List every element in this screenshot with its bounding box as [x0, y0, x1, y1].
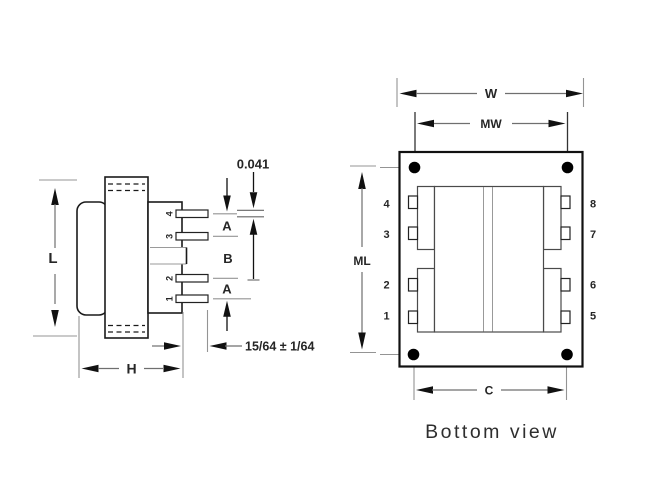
side-pin-number-3: 3: [165, 234, 175, 239]
bottom-pin-number-2: 2: [383, 280, 389, 292]
bottom-pin-4: [409, 196, 418, 209]
c-left-arrowhead: [416, 386, 433, 394]
dimension-label-h: H: [126, 361, 136, 377]
mw-left-arrowhead: [417, 120, 434, 128]
transformer-dimension-drawing: L 4 3 2 1 A B A: [0, 0, 650, 498]
h-left-arrowhead: [82, 365, 99, 373]
mounting-hole-top-left: [409, 162, 421, 174]
side-pin-number-2: 2: [165, 276, 175, 281]
bottom-pin-number-1: 1: [383, 311, 389, 323]
ml-up-arrowhead: [358, 172, 366, 189]
ml-down-arrowhead: [358, 333, 366, 350]
thickness-down-arrowhead: [250, 192, 258, 208]
terminal-block-bottom-right: [544, 269, 562, 333]
h-right-arrowhead: [164, 365, 181, 373]
pin-length-right-pointing-arrowhead: [164, 342, 181, 349]
coil-bobbin: [77, 202, 108, 315]
dimension-label-pin-length: 15/64 ± 1/64: [245, 340, 314, 354]
l-up-arrowhead: [51, 188, 59, 205]
terminal-block-top-right: [544, 187, 562, 250]
side-pin-2: [176, 275, 208, 283]
bottom-pin-number-5: 5: [590, 311, 596, 323]
pin-length-left-pointing-arrowhead: [210, 342, 227, 349]
bottom-pin-5: [561, 311, 570, 324]
dimension-label-l: L: [48, 250, 57, 267]
side-pin-number-1: 1: [165, 296, 175, 301]
dimension-label-a-top: A: [222, 219, 232, 234]
dimension-label-mw: MW: [480, 117, 502, 131]
bottom-pin-number-6: 6: [590, 280, 596, 292]
side-pin-number-4: 4: [165, 211, 175, 216]
bottom-pin-8: [561, 196, 570, 209]
mw-right-arrowhead: [549, 120, 566, 128]
pitch-down-arrowhead: [223, 196, 231, 212]
dimension-label-b: B: [223, 251, 232, 266]
dimension-label-c: C: [485, 384, 494, 398]
side-view: L 4 3 2 1 A B A: [33, 157, 314, 379]
bottom-pin-number-7: 7: [590, 229, 596, 241]
c-right-arrowhead: [548, 386, 565, 394]
bottom-pin-3: [409, 227, 418, 240]
bottom-view-caption: Bottom view: [425, 421, 559, 443]
side-pin-3: [176, 233, 208, 241]
pitch-up-arrowhead: [223, 301, 231, 317]
dimension-label-ml: ML: [353, 254, 370, 268]
bottom-view: W MW 4 3 2: [350, 78, 596, 443]
coil-body: [435, 187, 544, 333]
lamination-stack: [105, 177, 148, 338]
mounting-hole-bottom-right: [561, 349, 573, 361]
w-left-arrowhead: [400, 90, 417, 98]
bottom-pin-1: [409, 311, 418, 324]
l-down-arrowhead: [51, 310, 59, 327]
dimension-label-a-bottom: A: [222, 282, 232, 297]
bottom-pin-7: [561, 227, 570, 240]
dimension-label-pin-thickness: 0.041: [237, 157, 270, 172]
side-pin-4: [176, 210, 208, 218]
dimension-label-w: W: [485, 86, 498, 101]
thickness-up-arrowhead: [250, 219, 258, 235]
terminal-block-bottom-left: [418, 269, 435, 333]
bottom-pin-number-4: 4: [383, 199, 390, 211]
bottom-pin-6: [561, 279, 570, 292]
side-pin-1: [176, 295, 208, 303]
mounting-hole-top-right: [562, 162, 574, 174]
center-tab-fill: [150, 248, 187, 265]
mounting-hole-bottom-left: [408, 349, 420, 361]
drawing-svg: L 4 3 2 1 A B A: [0, 0, 650, 498]
terminal-block-top-left: [418, 187, 435, 250]
bottom-pin-2: [409, 279, 418, 292]
bottom-pin-number-3: 3: [383, 229, 389, 241]
bottom-pin-number-8: 8: [590, 199, 596, 211]
w-right-arrowhead: [566, 90, 583, 98]
